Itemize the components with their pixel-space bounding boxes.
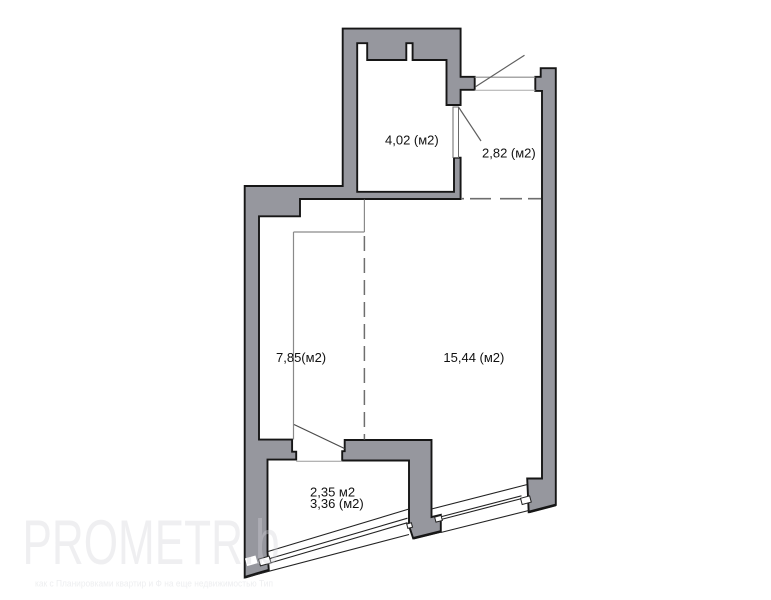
svg-text:3,36 (м2): 3,36 (м2) <box>310 496 364 511</box>
svg-text:как с Планировками квартир и Ф: как с Планировками квартир и Ф на еще не… <box>35 579 273 589</box>
svg-text:4,02 (м2): 4,02 (м2) <box>385 133 439 148</box>
svg-text:2,82 (м2): 2,82 (м2) <box>482 146 536 161</box>
svg-text:15,44 (м2): 15,44 (м2) <box>443 350 504 365</box>
svg-text:7,85(м2): 7,85(м2) <box>276 350 326 365</box>
svg-text:PROMETR.b: PROMETR.b <box>23 507 280 578</box>
